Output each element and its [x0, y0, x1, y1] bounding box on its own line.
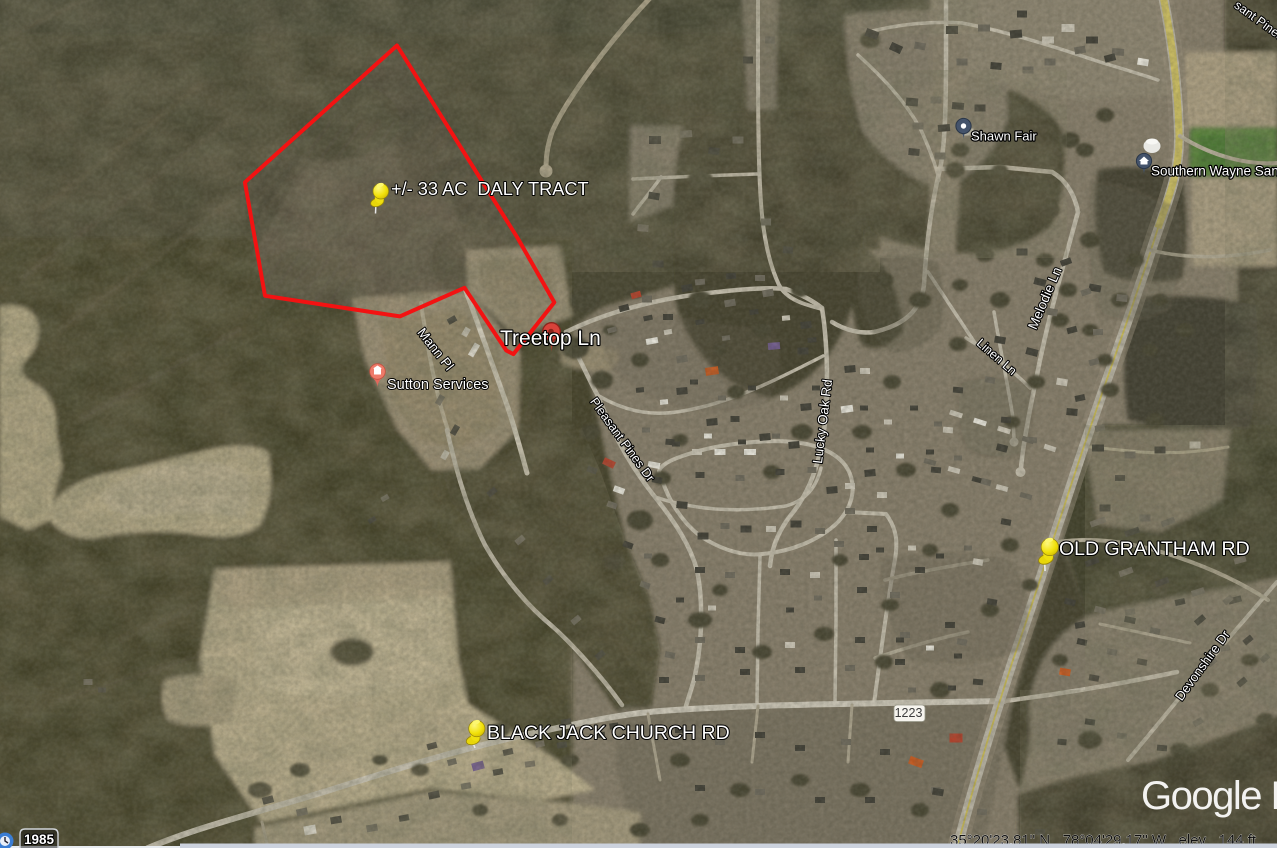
svg-text:Shawn Fair: Shawn Fair — [971, 129, 1037, 144]
svg-text:OLD GRANTHAM RD: OLD GRANTHAM RD — [1059, 538, 1250, 560]
svg-text:1985: 1985 — [24, 832, 55, 847]
svg-text:Sutton Services: Sutton Services — [387, 377, 489, 393]
svg-text:Google E: Google E — [1141, 774, 1277, 818]
svg-text:+/- 33 AC DALY TRACT: +/- 33 AC DALY TRACT — [391, 179, 589, 199]
svg-text:1223: 1223 — [895, 706, 923, 720]
svg-text:Southern Wayne Sani: Southern Wayne Sani — [1151, 164, 1277, 179]
svg-text:Treetop Ln: Treetop Ln — [500, 327, 601, 350]
svg-text:BLACK JACK CHURCH RD: BLACK JACK CHURCH RD — [487, 722, 730, 744]
